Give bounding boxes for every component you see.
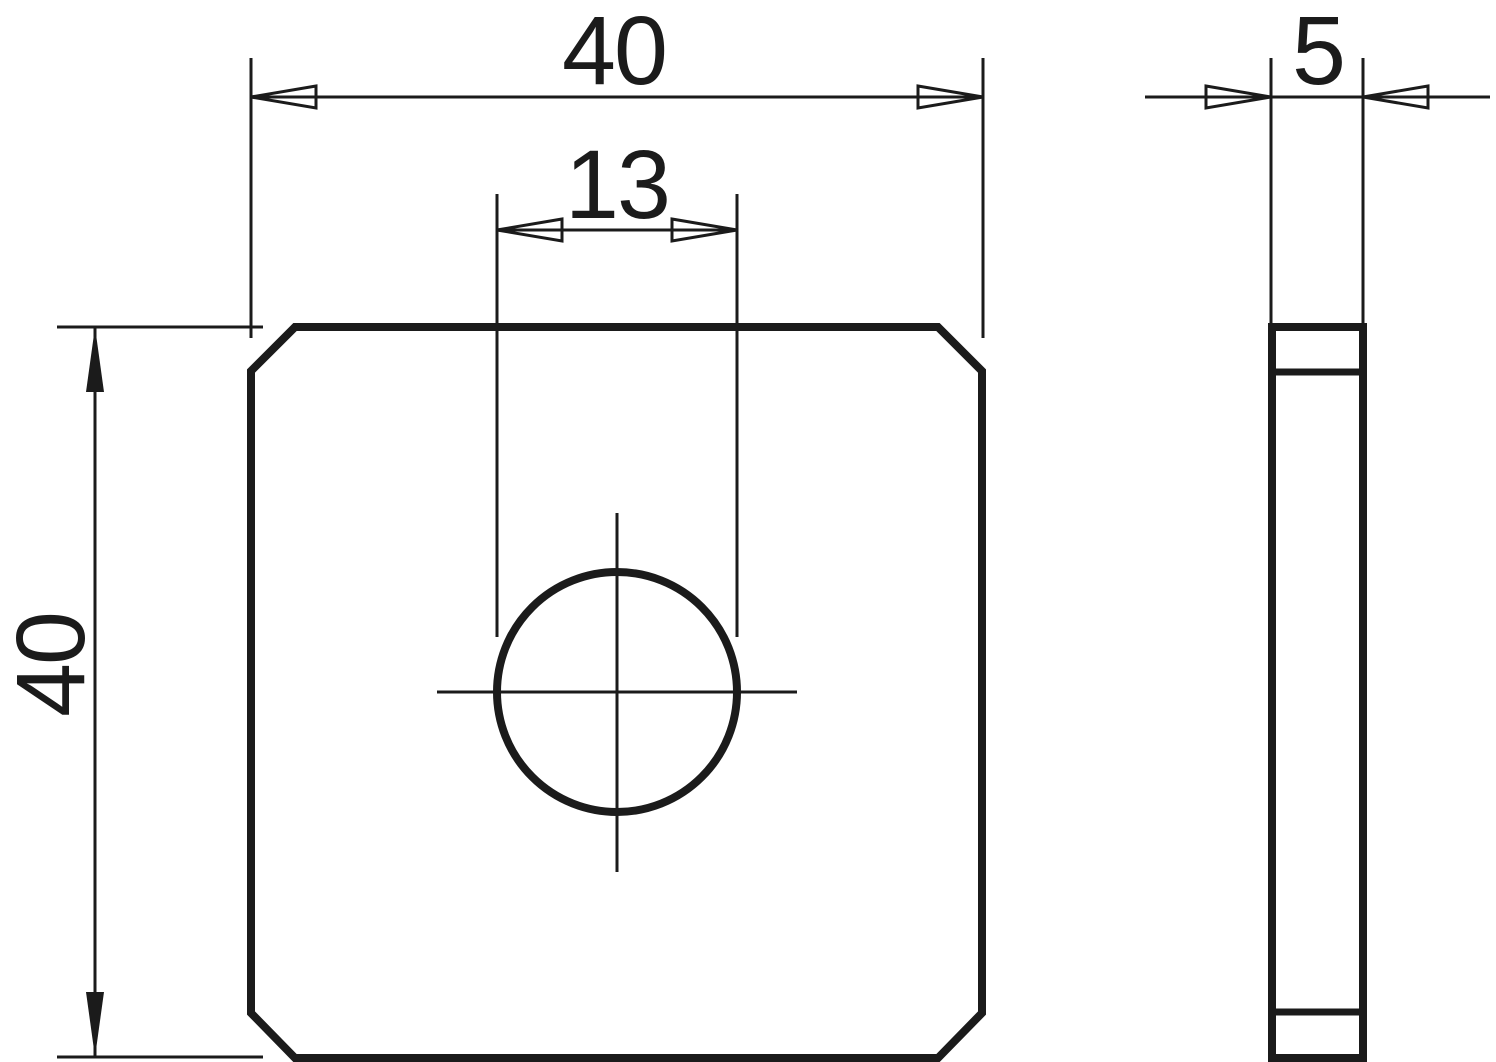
side-outline [1272, 327, 1363, 1058]
dim-hole-value: 13 [565, 130, 669, 239]
dim-thickness-value: 5 [1292, 0, 1344, 105]
dim-left-height-value: 40 [0, 613, 105, 717]
arrow-filled-up-icon [86, 327, 104, 392]
dim-top-width-value: 40 [562, 0, 666, 105]
front-view [251, 327, 982, 1058]
drawing-canvas: 40 13 40 [0, 0, 1496, 1062]
arrow-filled-down-icon [86, 992, 104, 1057]
side-view [1272, 327, 1363, 1058]
hole-centerlines [437, 513, 797, 872]
